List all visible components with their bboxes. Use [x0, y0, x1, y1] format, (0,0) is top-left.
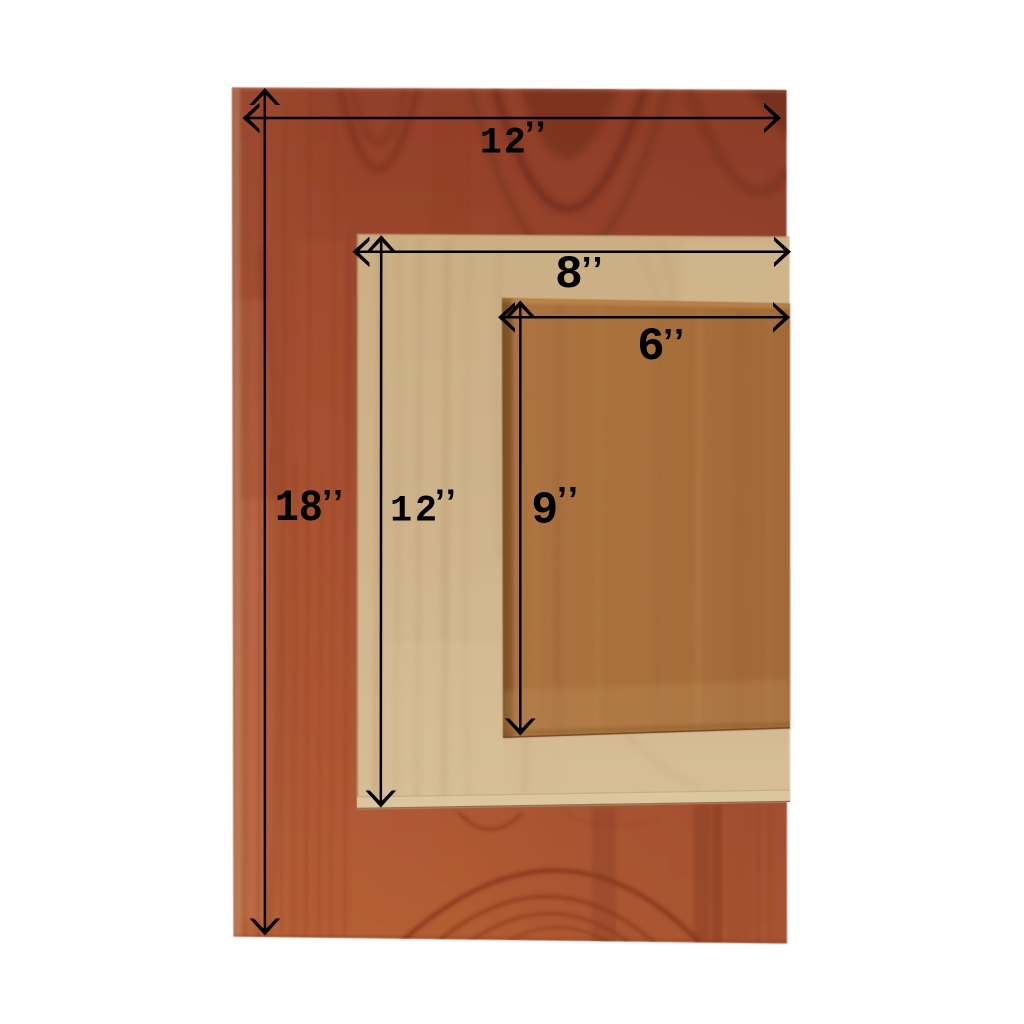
svg-text:8: 8	[555, 248, 583, 301]
svg-text:’’: ’’	[322, 482, 345, 523]
svg-text:9: 9	[531, 486, 558, 537]
svg-text:’’: ’’	[582, 249, 605, 290]
svg-text:’’: ’’	[557, 479, 580, 520]
svg-text:18: 18	[275, 484, 323, 534]
svg-text:12: 12	[390, 491, 440, 532]
svg-text:12: 12	[480, 122, 528, 163]
svg-text:’’: ’’	[435, 482, 458, 523]
svg-text:’’: ’’	[663, 321, 686, 362]
svg-text:6: 6	[637, 321, 665, 373]
svg-text:’’: ’’	[525, 113, 548, 154]
